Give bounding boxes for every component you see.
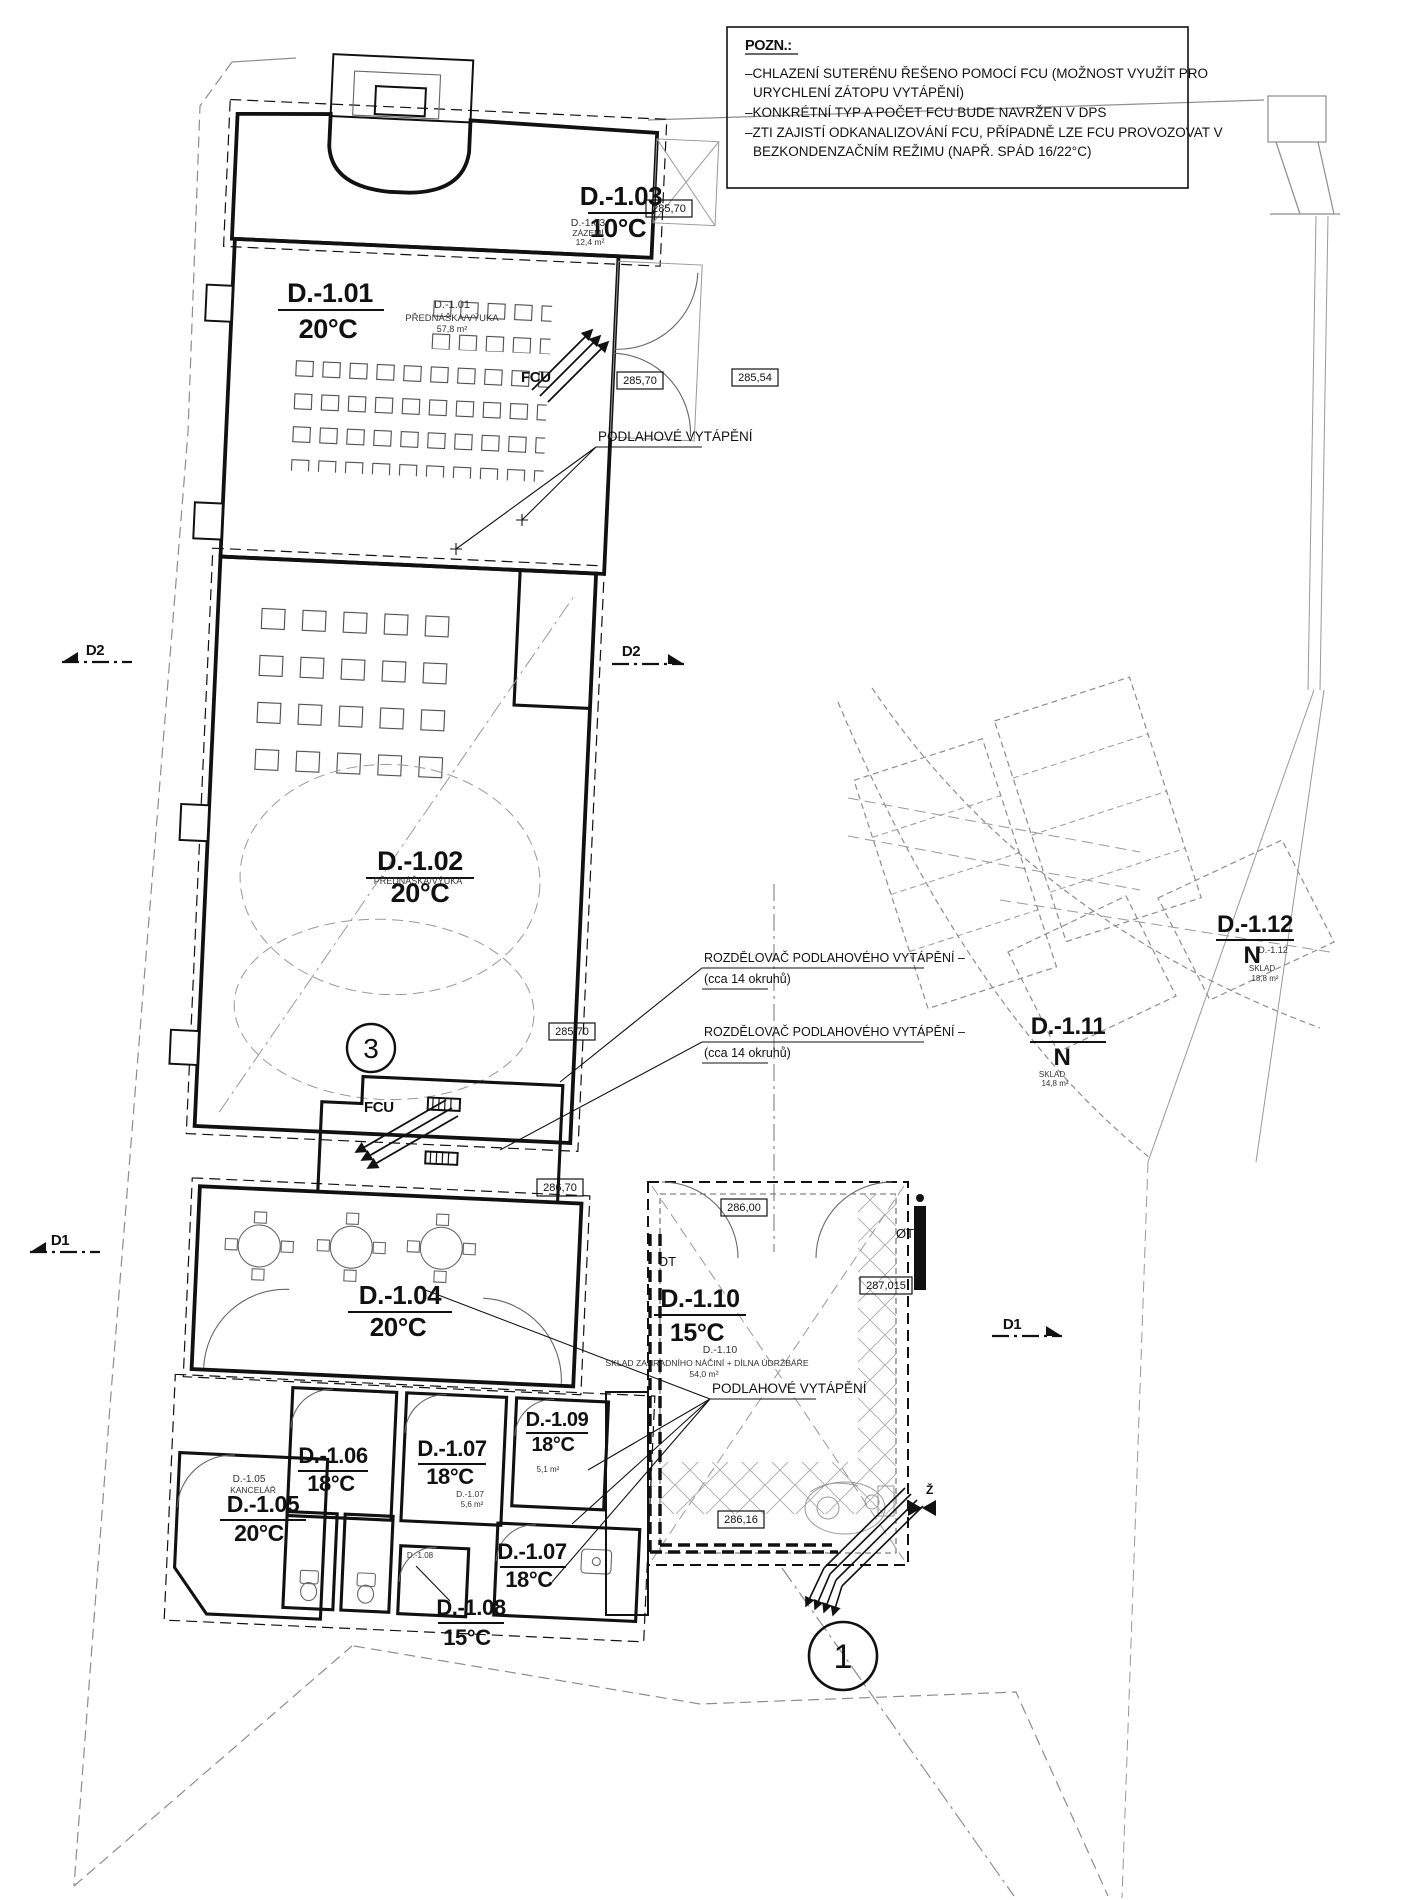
- entrance-porch: [331, 54, 474, 122]
- room-label-d109: D.-1.09: [526, 1409, 589, 1431]
- truss-band-bottom: [660, 1462, 896, 1514]
- room-vent-d111: N: [1054, 1044, 1071, 1071]
- elevation-boxes: 285,70 285,70 285,54 285,70 286,70 286,0…: [537, 200, 912, 1528]
- ot-label: OT: [658, 1254, 676, 1269]
- note-line-4: –ZTI ZAJISTÍ ODKANALIZOVÁNÍ FCU, PŘÍPADN…: [745, 125, 1223, 140]
- room-label-d101: D.-1.01: [287, 278, 373, 308]
- room-label-d108: D.-1.08: [436, 1595, 506, 1620]
- plan-canvas: 285,70 285,70 285,54 285,70 286,70 286,0…: [0, 0, 1426, 1900]
- room-sub-d101-id: D.-1.01: [434, 299, 470, 311]
- elevation-286-16: 286,16: [724, 1514, 758, 1526]
- room-sub-d112-area: 18,8 m²: [1251, 974, 1278, 983]
- room-label-d112: D.-1.12: [1217, 911, 1293, 938]
- tables-d104: [224, 1204, 477, 1289]
- elevation-285-54: 285,54: [738, 372, 772, 384]
- property-line-bottom: [782, 1568, 1014, 1896]
- room-sub-d103-area: 12,4 m²: [576, 237, 605, 247]
- room-label-d105: D.-1.05: [227, 1491, 300, 1517]
- elevation-287-015: 287,015: [866, 1280, 906, 1292]
- floor-plan-drawing: 285,70 285,70 285,54 285,70 286,70 286,0…: [0, 0, 1426, 1900]
- pipe-riser-dot: [916, 1194, 924, 1202]
- seating-grid-d102: [250, 593, 463, 787]
- room-sub-d110-area: 54,0 m²: [689, 1369, 718, 1379]
- room-sub-d108-id: D.-1.08: [407, 1551, 434, 1560]
- note-line-5: BEZKONDENZAČNÍM REŽIMU (NAPŘ. SPÁD 16/22…: [753, 144, 1091, 159]
- room-temp-d109: 18°C: [531, 1434, 574, 1456]
- room-label-d107b: D.-1.07: [497, 1539, 567, 1564]
- door-arcs-d110: [662, 1182, 892, 1258]
- tower-structure: [1122, 96, 1340, 1898]
- room-label-d107a: D.-1.07: [417, 1436, 487, 1461]
- section-d2-left-label: D2: [86, 642, 104, 659]
- room-temp-d107a: 18°C: [426, 1464, 474, 1489]
- door-arcs-d101: [610, 269, 697, 436]
- ot-crossed-label: ØT: [896, 1226, 914, 1241]
- room-temp-d110: 15°C: [670, 1319, 725, 1347]
- elevation-285-70-c: 285,70: [555, 1026, 589, 1038]
- note-box: POZN.: –CHLAZENÍ SUTERÉNU ŘEŠENO POMOCÍ …: [727, 27, 1223, 188]
- manifold-label-2-line1: ROZDĚLOVAČ PODLAHOVÉHO VYTÁPĚNÍ –: [704, 1024, 965, 1039]
- room-sub-d107a-id: D.-1.07: [456, 1489, 484, 1499]
- room-sub-d109-area: 5,1 m²: [537, 1465, 560, 1474]
- detail-number-1: 1: [834, 1638, 853, 1676]
- room-temp-d102: 20°C: [391, 878, 450, 908]
- site-boundary-left: [74, 62, 232, 1886]
- corridor: [606, 1392, 648, 1615]
- section-d1-left-label: D1: [51, 1232, 69, 1249]
- room-d102-notch: [514, 570, 596, 708]
- room-sub-d111-area: 14,8 m²: [1041, 1079, 1068, 1088]
- site-boundary-top-left: [232, 58, 296, 62]
- room-sub-d105-id: D.-1.05: [233, 1474, 266, 1485]
- elevation-286-00: 286,00: [727, 1202, 761, 1214]
- room-temp-d104: 20°C: [370, 1312, 427, 1342]
- z-valve-label: Ž: [926, 1482, 933, 1497]
- room-sub-d101-area: 57,8 m²: [437, 324, 468, 334]
- room-label-d111: D.-1.11: [1031, 1013, 1106, 1040]
- room-temp-d108: 15°C: [443, 1625, 491, 1650]
- fcu-label-2: FCU: [364, 1099, 394, 1116]
- manifold-label-1-line1: ROZDĚLOVAČ PODLAHOVÉHO VYTÁPĚNÍ –: [704, 950, 965, 965]
- fcu-label-1: FCU: [521, 369, 551, 386]
- room-label-d103: D.-1.03: [580, 181, 662, 211]
- room-sub-d112-id: D.-1.12: [1258, 945, 1288, 955]
- room-sub-d110-use: SKLAD ZAHRADNÍHO NÁČINÍ + DÍLNA ÚDRŽBÁŘE: [605, 1358, 808, 1368]
- detail-number-3: 3: [363, 1033, 379, 1064]
- room-temp-d106: 18°C: [307, 1471, 355, 1496]
- radiator-symbol: [914, 1206, 926, 1290]
- room-label-d102: D.-1.02: [377, 846, 463, 876]
- section-d1-right-label: D1: [1003, 1316, 1021, 1333]
- wc-cell-b: [341, 1514, 393, 1612]
- site-boundary-bottom: [354, 1646, 1108, 1896]
- wc-cell-a: [283, 1512, 337, 1610]
- room-temp-d101: 20°C: [299, 314, 358, 344]
- floor-heating-label-2: PODLAHOVÉ VYTÁPĚNÍ: [712, 1381, 867, 1396]
- elevation-286-70: 286,70: [543, 1182, 577, 1194]
- site-boundary-bottom-left: [74, 1646, 352, 1886]
- truss-band-right: [858, 1194, 896, 1462]
- manifold-label-2-line2: (cca 14 okruhů): [704, 1046, 791, 1060]
- elevation-285-70-b: 285,70: [623, 375, 657, 387]
- manifold-label-1-line2: (cca 14 okruhů): [704, 972, 791, 986]
- room-sub-d112-use: SKLAD: [1249, 964, 1275, 973]
- room-temp-d105: 20°C: [234, 1520, 284, 1546]
- room-label-d110: D.-1.10: [660, 1285, 739, 1313]
- section-d2-right-label: D2: [622, 643, 640, 660]
- seating-grid-d101-b: [283, 346, 548, 482]
- room-temp-d107b: 18°C: [505, 1567, 553, 1592]
- room-sub-d110-id: D.-1.10: [703, 1344, 738, 1356]
- floor-heating-label-1: PODLAHOVÉ VYTÁPĚNÍ: [598, 429, 753, 444]
- room-sub-d107a-area: 5,6 m²: [461, 1500, 484, 1509]
- note-title: POZN.:: [745, 38, 792, 54]
- room-label-d106: D.-1.06: [298, 1443, 368, 1468]
- valve-symbol: [908, 1500, 936, 1516]
- note-line-2: URYCHLENÍ ZÁTOPU VYTÁPĚNÍ): [753, 85, 964, 100]
- room-sub-d111-use: SKLAD: [1039, 1070, 1065, 1079]
- note-line-1: –CHLAZENÍ SUTERÉNU ŘEŠENO POMOCÍ FCU (MO…: [745, 66, 1208, 81]
- room-sub-d101-use: PŘEDNÁŠKA/VÝUKA: [405, 313, 499, 324]
- room-label-d104: D.-1.04: [359, 1280, 442, 1310]
- note-line-3: –KONKRÉTNÍ TYP A POČET FCU BUDE NAVRŽEN …: [745, 105, 1106, 120]
